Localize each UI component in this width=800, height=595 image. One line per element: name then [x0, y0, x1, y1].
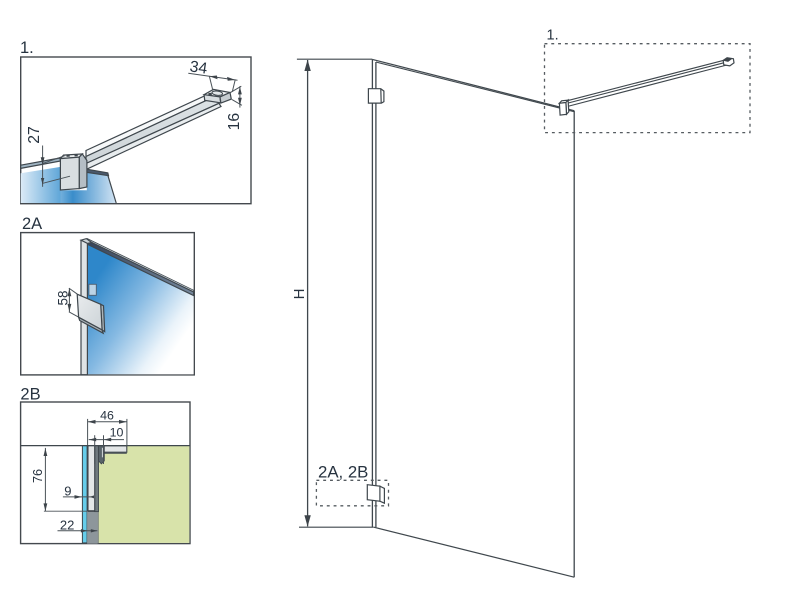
svg-text:1.: 1. — [547, 28, 559, 44]
svg-text:34: 34 — [189, 58, 209, 77]
svg-text:2A: 2A — [22, 215, 42, 233]
svg-text:2A, 2B: 2A, 2B — [318, 463, 368, 482]
svg-text:H: H — [291, 289, 308, 300]
svg-text:2B: 2B — [20, 386, 40, 404]
svg-text:9: 9 — [64, 484, 71, 499]
svg-text:22: 22 — [60, 517, 74, 532]
svg-text:16: 16 — [226, 113, 243, 131]
svg-text:58: 58 — [56, 290, 71, 305]
svg-text:27: 27 — [26, 126, 43, 144]
svg-text:76: 76 — [31, 469, 45, 483]
svg-text:1.: 1. — [20, 39, 34, 57]
svg-text:10: 10 — [110, 425, 124, 439]
svg-text:46: 46 — [100, 409, 114, 423]
